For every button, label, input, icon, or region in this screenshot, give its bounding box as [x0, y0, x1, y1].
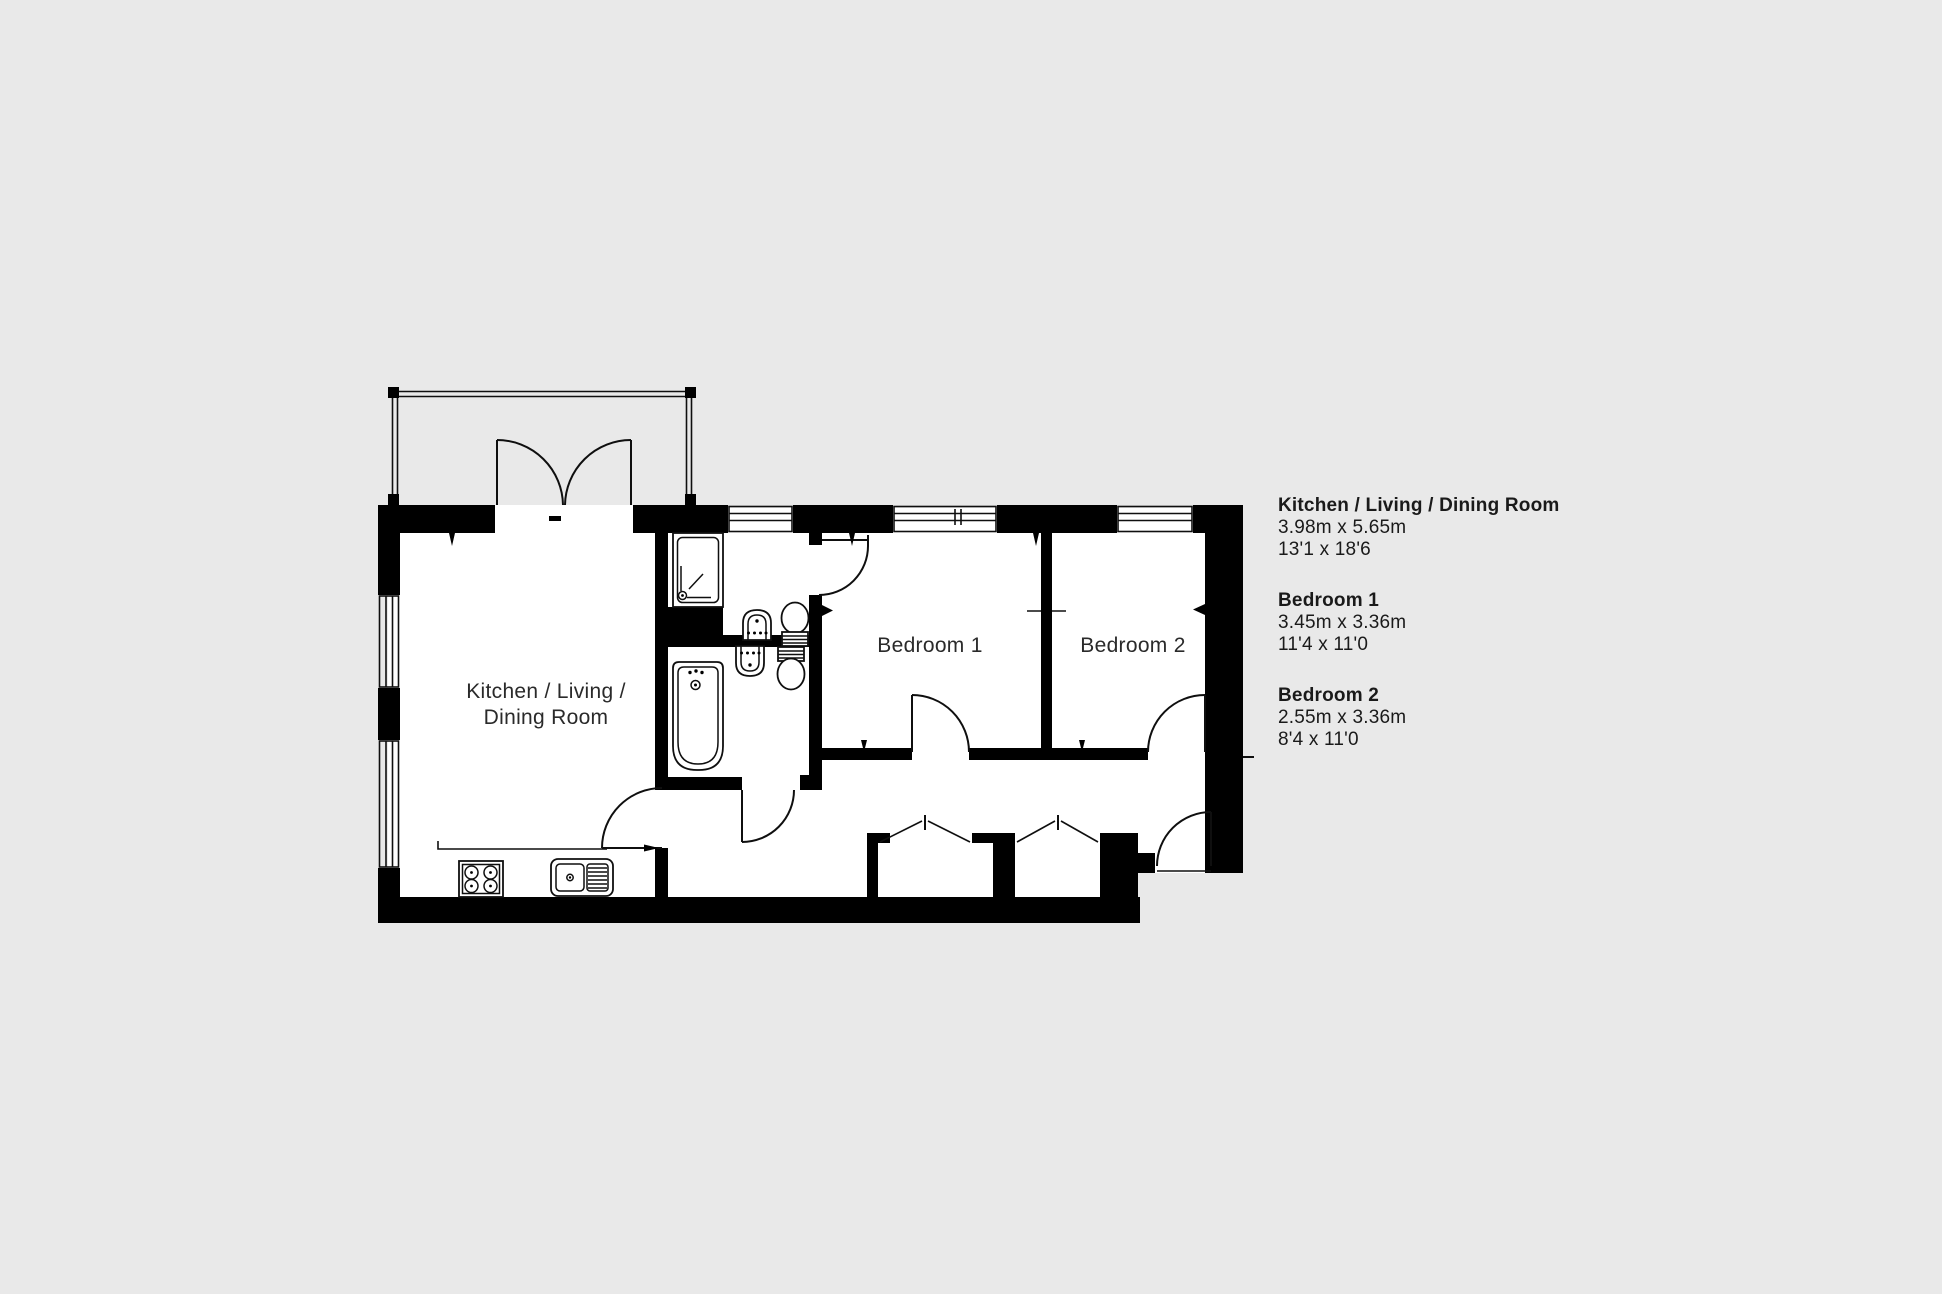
- room-label-kitchen-line1: Kitchen / Living /: [466, 680, 626, 703]
- legend-room-imperial: 13'1 x 18'6: [1278, 539, 1560, 561]
- legend-kitchen: Kitchen / Living / Dining Room 3.98m x 5…: [1278, 495, 1560, 561]
- legend-room-name: Kitchen / Living / Dining Room: [1278, 495, 1560, 517]
- toilet-shower-room: [782, 603, 809, 647]
- shower-tray: [673, 533, 723, 607]
- threshold-mark: [549, 516, 561, 521]
- legend-room-name: Bedroom 2: [1278, 685, 1560, 707]
- railing-post: [388, 387, 399, 398]
- room-label-bedroom2: Bedroom 2: [1080, 634, 1185, 657]
- legend-room-name: Bedroom 1: [1278, 590, 1560, 612]
- room-dimensions-legend: Kitchen / Living / Dining Room 3.98m x 5…: [1278, 495, 1560, 780]
- room-label-bedroom1: Bedroom 1: [877, 634, 982, 657]
- railing-post: [685, 387, 696, 398]
- legend-bedroom1: Bedroom 1 3.45m x 3.36m 11'4 x 11'0: [1278, 590, 1560, 656]
- legend-bedroom2: Bedroom 2 2.55m x 3.36m 8'4 x 11'0: [1278, 685, 1560, 751]
- legend-room-metric: 3.98m x 5.65m: [1278, 517, 1560, 539]
- kitchen-sink: [551, 859, 613, 896]
- railing-post: [388, 494, 399, 505]
- legend-room-metric: 3.45m x 3.36m: [1278, 612, 1560, 634]
- legend-room-imperial: 8'4 x 11'0: [1278, 729, 1560, 751]
- railing-post: [685, 494, 696, 505]
- french-doors: [497, 440, 631, 505]
- washbasin-shower-room: [743, 610, 771, 640]
- bathtub: [673, 662, 723, 770]
- room-label-kitchen-line2: Dining Room: [484, 706, 609, 729]
- floorplan-page: Kitchen / Living / Dining Room Bedroom 1…: [0, 0, 1942, 1294]
- legend-room-metric: 2.55m x 3.36m: [1278, 707, 1560, 729]
- legend-room-imperial: 11'4 x 11'0: [1278, 634, 1560, 656]
- floorplan-drawing: Kitchen / Living / Dining Room Bedroom 1…: [0, 0, 1942, 1294]
- washbasin-bathroom: [736, 646, 764, 676]
- hob: [459, 861, 503, 897]
- balcony-railing: [388, 387, 696, 505]
- toilet-bathroom: [778, 647, 805, 690]
